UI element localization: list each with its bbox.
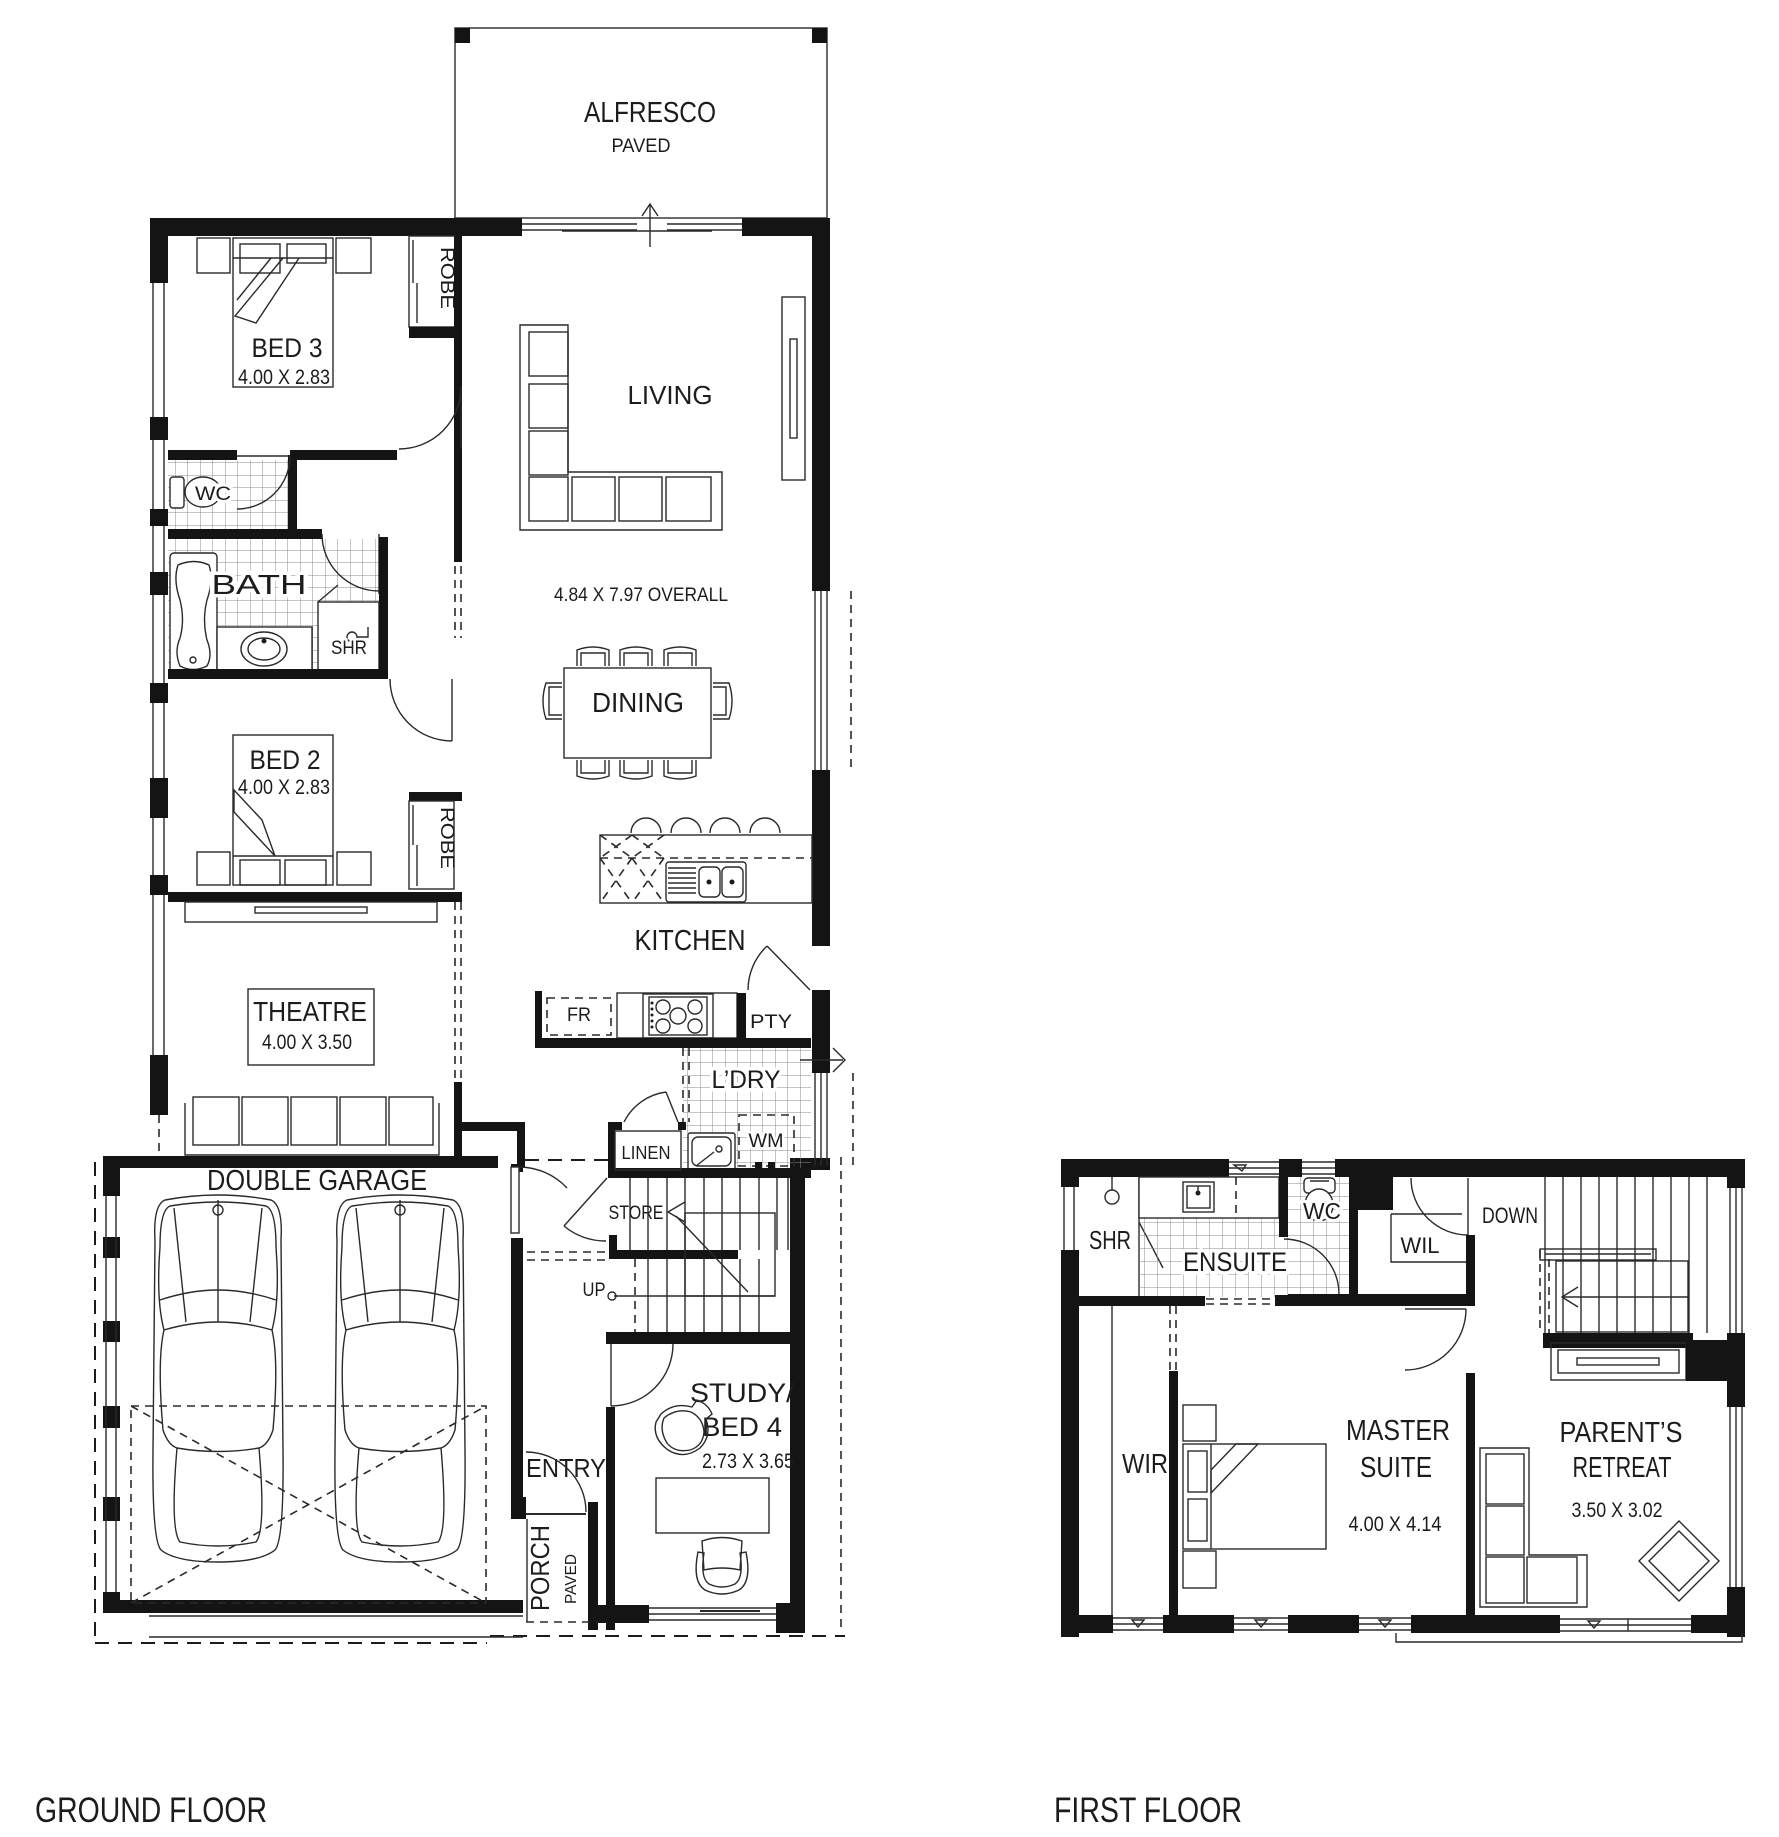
- svg-text:4.00 X 2.83: 4.00 X 2.83: [238, 776, 330, 799]
- svg-text:DOWN: DOWN: [1482, 1203, 1538, 1228]
- svg-text:PARENT’S: PARENT’S: [1560, 1417, 1683, 1449]
- svg-text:STORE: STORE: [609, 1203, 664, 1224]
- svg-text:PAVED: PAVED: [563, 1554, 580, 1604]
- svg-text:DINING: DINING: [592, 687, 684, 718]
- svg-text:4.00 X 4.14: 4.00 X 4.14: [1349, 1513, 1442, 1536]
- svg-text:DOUBLE GARAGE: DOUBLE GARAGE: [207, 1165, 427, 1197]
- svg-text:ROBE: ROBE: [436, 247, 457, 309]
- svg-text:BATH: BATH: [212, 569, 307, 600]
- svg-text:THEATRE: THEATRE: [253, 996, 367, 1027]
- svg-text:BED 2: BED 2: [250, 745, 321, 775]
- svg-text:FIRST FLOOR: FIRST FLOOR: [1054, 1791, 1242, 1830]
- svg-text:SHR: SHR: [1089, 1225, 1131, 1255]
- svg-text:PORCH: PORCH: [525, 1525, 555, 1611]
- svg-text:RETREAT: RETREAT: [1573, 1452, 1672, 1484]
- svg-text:ALFRESCO: ALFRESCO: [584, 97, 716, 129]
- svg-text:4.00 X 2.83: 4.00 X 2.83: [238, 366, 330, 389]
- svg-text:LIVING: LIVING: [628, 380, 713, 410]
- svg-text:WC: WC: [195, 484, 231, 505]
- svg-text:LINEN: LINEN: [622, 1143, 671, 1163]
- svg-text:3.50 X 3.02: 3.50 X 3.02: [1572, 1499, 1663, 1522]
- svg-text:BED 4: BED 4: [702, 1412, 782, 1442]
- svg-text:PTY: PTY: [750, 1012, 792, 1033]
- svg-text:UP: UP: [583, 1280, 606, 1301]
- svg-text:WM: WM: [749, 1131, 784, 1152]
- svg-text:BED 3: BED 3: [252, 333, 323, 363]
- svg-text:WIR: WIR: [1122, 1448, 1168, 1479]
- svg-text:2.73 X 3.65: 2.73 X 3.65: [702, 1450, 794, 1473]
- svg-text:STUDY/: STUDY/: [690, 1378, 795, 1408]
- svg-text:4.00 X 3.50: 4.00 X 3.50: [262, 1031, 352, 1054]
- svg-text:SUITE: SUITE: [1360, 1452, 1432, 1484]
- svg-text:ENSUITE: ENSUITE: [1183, 1247, 1287, 1277]
- svg-text:4.84 X 7.97 OVERALL: 4.84 X 7.97 OVERALL: [554, 585, 728, 606]
- svg-text:ROBE: ROBE: [436, 807, 457, 869]
- svg-text:PAVED: PAVED: [612, 136, 671, 157]
- svg-text:KITCHEN: KITCHEN: [635, 925, 746, 957]
- svg-text:WIL: WIL: [1401, 1233, 1440, 1258]
- svg-text:WC: WC: [1303, 1198, 1341, 1224]
- svg-text:FR: FR: [567, 1005, 591, 1026]
- svg-text:L’DRY: L’DRY: [712, 1066, 781, 1094]
- svg-text:SHR: SHR: [331, 638, 367, 659]
- svg-text:MASTER: MASTER: [1346, 1415, 1450, 1447]
- svg-text:GROUND FLOOR: GROUND FLOOR: [35, 1791, 267, 1830]
